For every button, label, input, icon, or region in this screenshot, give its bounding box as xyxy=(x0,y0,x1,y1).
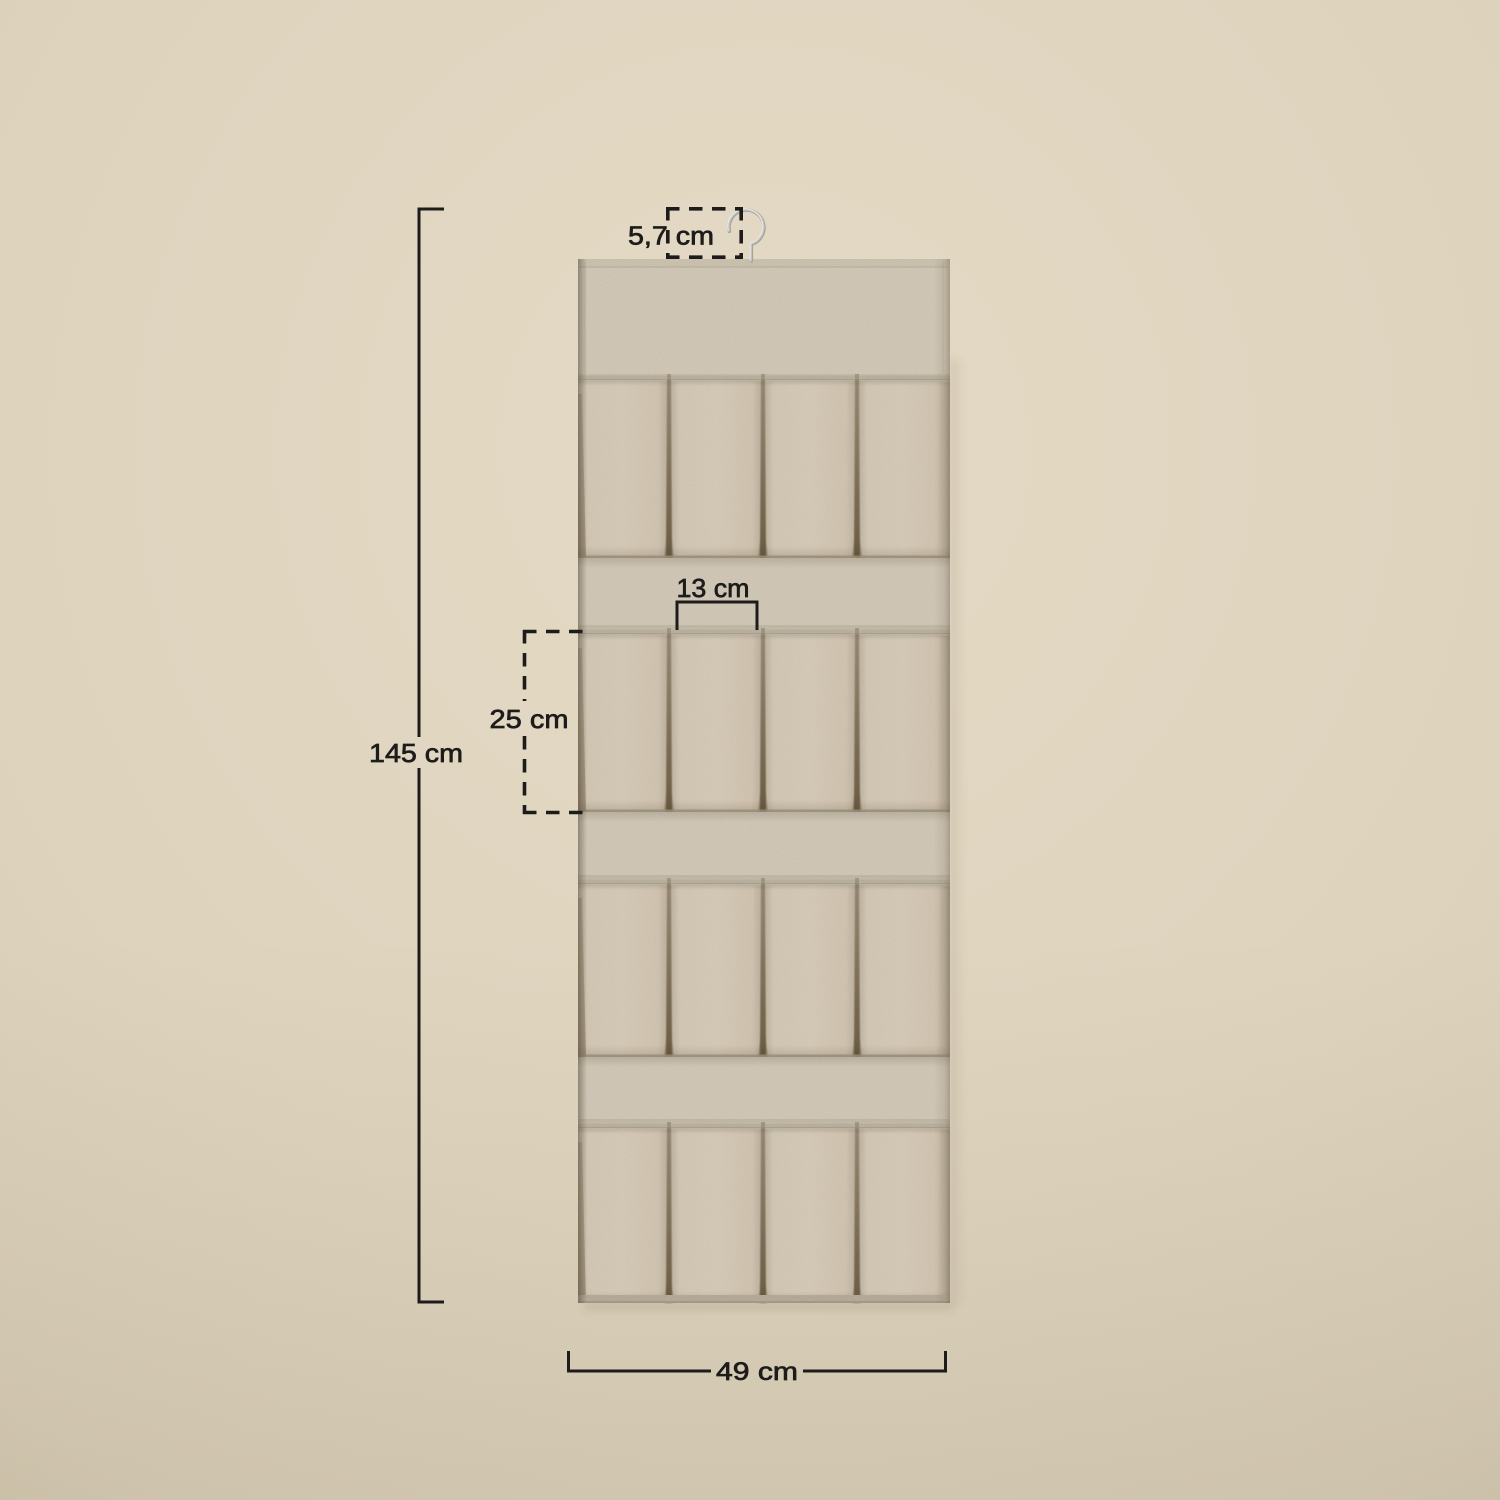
svg-text:49 cm: 49 cm xyxy=(716,1358,798,1386)
svg-text:5,7 cm: 5,7 cm xyxy=(628,221,714,251)
svg-text:25 cm: 25 cm xyxy=(490,704,569,734)
svg-text:13 cm: 13 cm xyxy=(677,573,750,603)
svg-text:145 cm: 145 cm xyxy=(369,738,463,768)
